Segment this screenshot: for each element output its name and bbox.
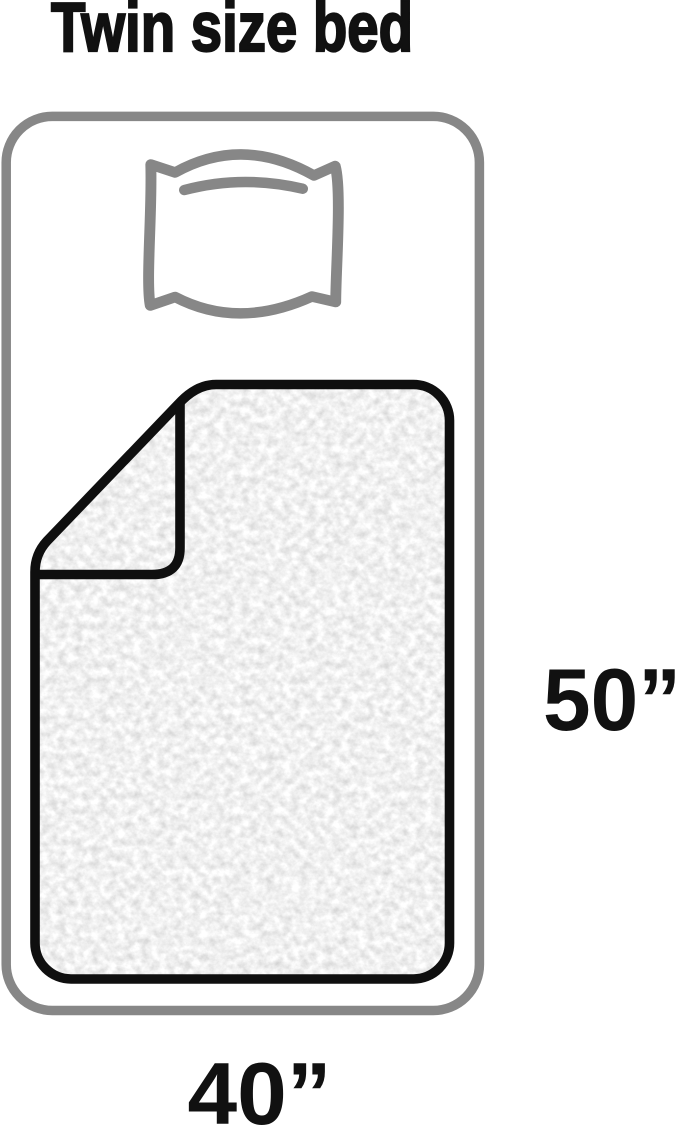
svg-text:50”: 50” [543,650,679,749]
svg-text:40”: 40” [188,1044,332,1128]
svg-text:Twin size bed: Twin size bed [51,0,413,66]
